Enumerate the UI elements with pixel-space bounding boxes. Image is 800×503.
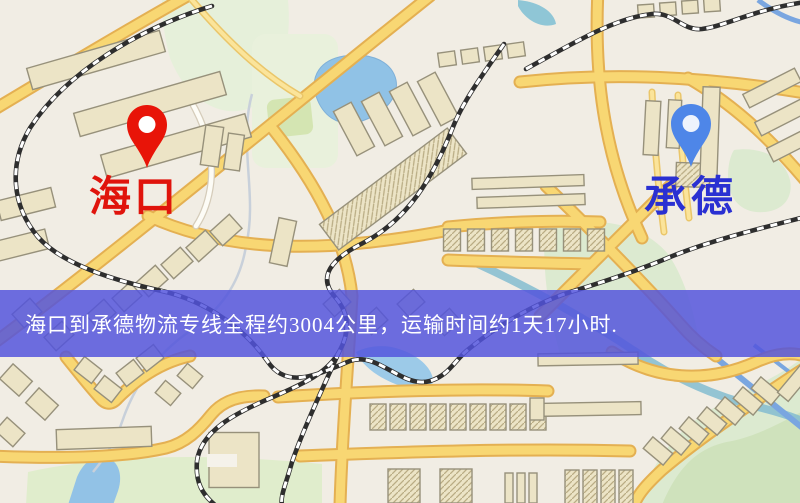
origin-city-label: 海口 bbox=[89, 177, 179, 219]
map-canvas[interactable]: 海口到承德物流专线全程约3004公里，运输时间约1天17小时. 海口 承德 bbox=[0, 0, 800, 503]
route-info-banner: 海口到承德物流专线全程约3004公里，运输时间约1天17小时. bbox=[0, 290, 800, 357]
origin-pin-icon bbox=[123, 103, 171, 169]
destination-city-label: 承德 bbox=[644, 177, 738, 219]
destination-pin[interactable] bbox=[667, 102, 715, 168]
origin-pin[interactable] bbox=[123, 103, 171, 169]
route-info-text: 海口到承德物流专线全程约3004公里，运输时间约1天17小时. bbox=[0, 309, 618, 339]
destination-pin-icon bbox=[667, 102, 715, 168]
map-base bbox=[0, 0, 800, 503]
